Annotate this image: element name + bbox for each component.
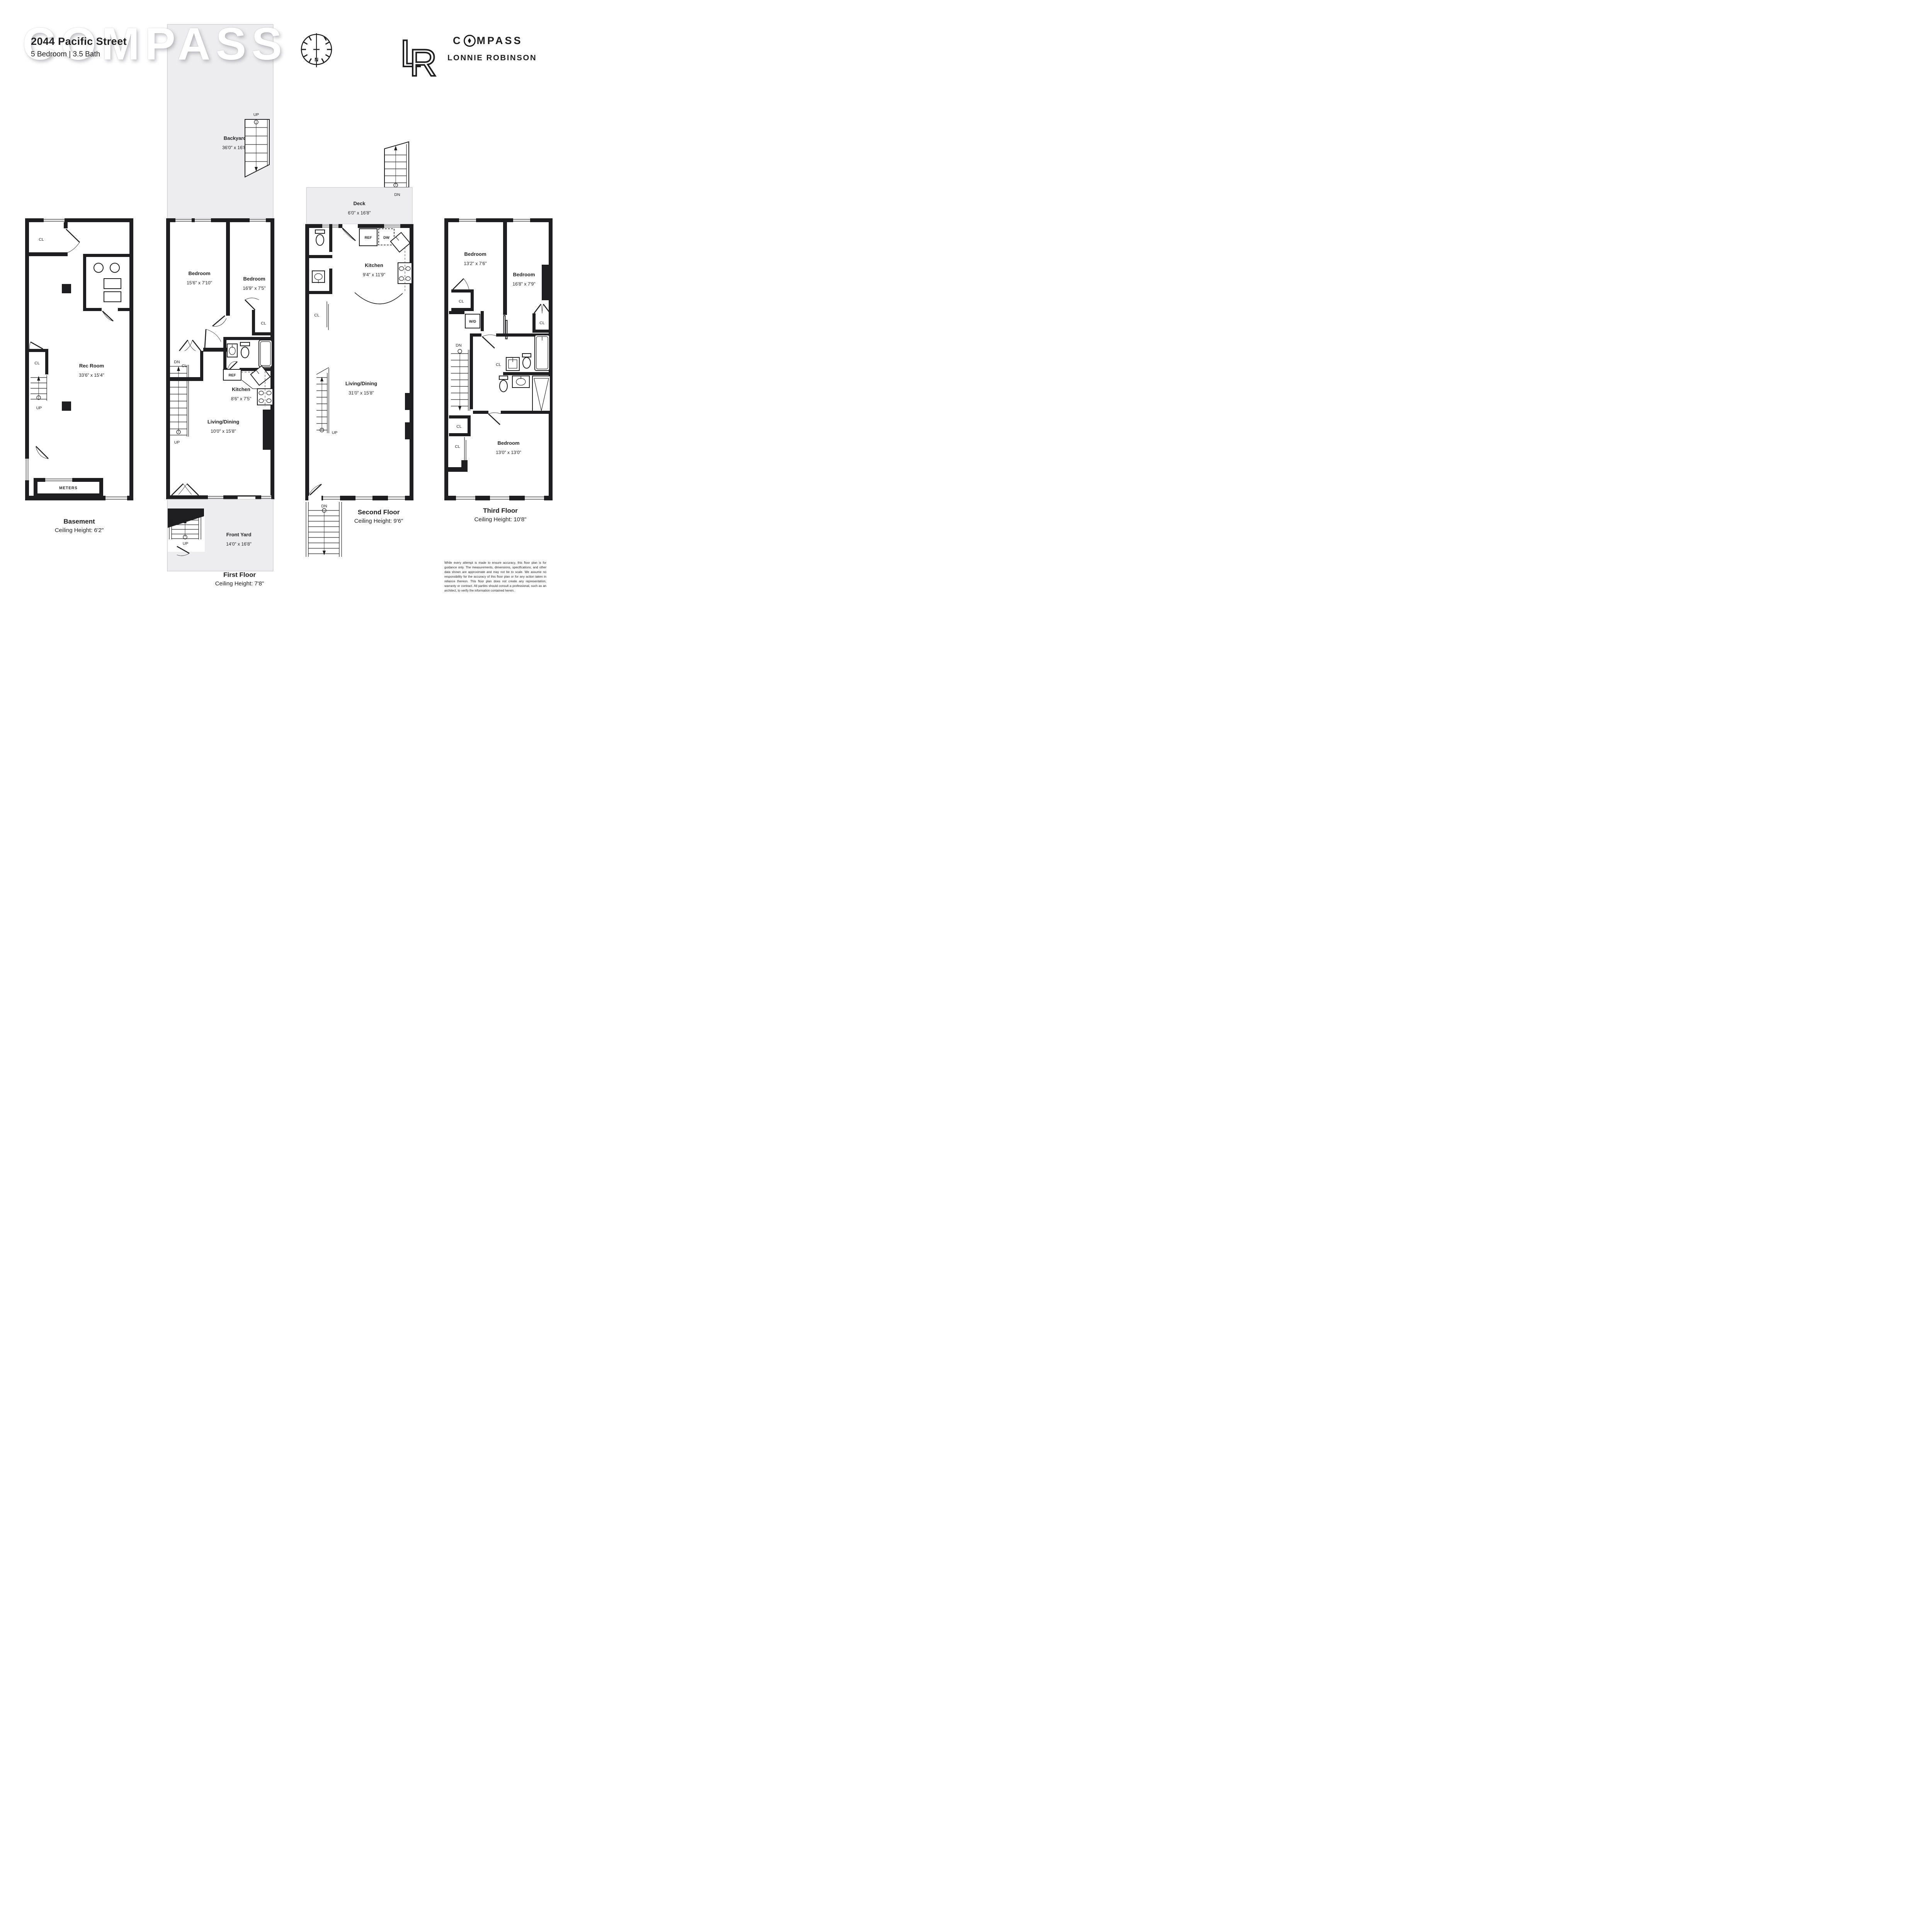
svg-text:8'6" x 7'5": 8'6" x 7'5" <box>231 396 251 401</box>
closet: CL <box>447 437 468 472</box>
bedroom1-label: Bedroom 15'6" x 7'10" <box>187 270 212 286</box>
svg-text:Deck: Deck <box>353 201 366 206</box>
disclaimer-text: While every attempt is made to ensure ac… <box>444 561 546 593</box>
closet: CL <box>449 415 471 436</box>
svg-text:14'0" x 16'8": 14'0" x 16'8" <box>226 541 252 547</box>
svg-text:Backyard: Backyard <box>224 135 247 141</box>
first-floor-walls <box>166 218 274 499</box>
wall-chunk <box>263 410 274 450</box>
staircase-up: UP <box>31 375 47 410</box>
closet-label: CL <box>455 444 460 449</box>
window <box>25 218 127 500</box>
closet: CL <box>29 342 48 374</box>
svg-text:Bedroom: Bedroom <box>464 251 486 257</box>
svg-text:10'0" x 15'8": 10'0" x 15'8" <box>211 429 236 434</box>
svg-text:Living/Dining: Living/Dining <box>207 419 239 425</box>
page-title: 2044 Pacific Street <box>31 36 127 48</box>
up-label: UP <box>253 112 259 117</box>
second-floor-caption: Second Floor Ceiling Height: 9'6" <box>321 509 437 524</box>
north-label: N <box>315 56 318 63</box>
shower-icon <box>532 376 550 412</box>
svg-text:6'0" x 16'8": 6'0" x 16'8" <box>348 210 371 216</box>
svg-text:16'8" x 7'9": 16'8" x 7'9" <box>512 281 535 287</box>
bathroom <box>473 376 553 425</box>
door <box>172 484 199 495</box>
svg-text:15'6" x 7'10": 15'6" x 7'10" <box>187 280 212 286</box>
svg-text:Living/Dining: Living/Dining <box>345 381 377 386</box>
kitchen-label: Kitchen <box>232 386 250 392</box>
staircase: DN UP <box>170 360 189 445</box>
meters-label: METERS <box>59 486 78 490</box>
closet-label: CL <box>39 237 44 242</box>
ref-label: REF <box>229 373 236 378</box>
closet-label: CL <box>456 424 462 429</box>
bed-bath-subtitle: 5 Bedroom | 3.5 Bath <box>31 50 127 59</box>
door <box>308 484 321 500</box>
closet-label: CL <box>459 299 464 304</box>
svg-text:Bedroom: Bedroom <box>243 276 265 282</box>
first-floor-caption: First Floor Ceiling Height: 7'8" <box>185 571 294 587</box>
title-block: 2044 Pacific Street 5 Bedroom | 3.5 Bath <box>31 36 127 59</box>
bathtub-icon <box>535 335 549 371</box>
sink-icon <box>312 271 325 283</box>
dn-label: DN <box>321 504 327 509</box>
svg-text:Front Yard: Front Yard <box>226 532 252 537</box>
powder-room <box>309 224 332 258</box>
wall-chunk <box>405 422 413 439</box>
toilet-icon <box>522 354 531 368</box>
svg-text:13'0" x 13'0": 13'0" x 13'0" <box>496 450 521 455</box>
up-label: UP <box>36 406 42 410</box>
washer-dryer: W/D <box>449 311 484 331</box>
staircase-up: UP <box>316 367 337 435</box>
dn-label: DN <box>174 360 180 364</box>
bathtub-icon <box>259 340 272 367</box>
svg-text:13'2" x 7'6": 13'2" x 7'6" <box>464 261 486 266</box>
second-floor-walls <box>305 224 413 500</box>
up-label: UP <box>174 440 180 445</box>
bedroom1-label: Bedroom 13'2" x 7'6" <box>464 251 486 266</box>
compass-rose-icon: N <box>300 32 333 68</box>
toilet-icon <box>240 342 250 358</box>
closet: CL <box>166 340 203 381</box>
bedroom2-label: Bedroom 16'8" x 7'9" <box>512 272 535 287</box>
door <box>36 446 48 459</box>
second-floor-plan: DN Deck 6'0" x 16'8" <box>305 141 413 570</box>
closet-label: CL <box>182 364 187 368</box>
basement-walls <box>25 218 133 500</box>
dn-label: DN <box>456 343 461 348</box>
bathroom <box>223 337 274 371</box>
column <box>62 284 71 293</box>
monogram-r: R <box>410 41 437 81</box>
wordmark-rest: MPASS <box>477 35 523 47</box>
door <box>205 316 226 348</box>
toilet-icon <box>499 376 508 392</box>
staircase-down: DN <box>451 343 470 411</box>
window <box>322 224 405 500</box>
compass-logo: C MPASS <box>453 35 523 47</box>
meters-room: METERS <box>34 478 103 497</box>
closet: CL <box>451 279 474 311</box>
compass-o-icon <box>464 35 476 47</box>
appliance-icon <box>104 292 121 302</box>
basement-floor-plan: CL CL UP Rec Room 33'6" x 15'4" <box>25 218 133 500</box>
living-dining-label: Living/Dining 10'0" x 15'8" <box>207 419 239 434</box>
closet-label: CL <box>314 313 320 318</box>
laundry-machine-icon <box>110 263 119 272</box>
appliance-icon <box>104 279 121 289</box>
dn-label: DN <box>394 192 400 197</box>
ref-label: REF <box>365 236 372 240</box>
svg-text:33'6" x 15'4": 33'6" x 15'4" <box>79 372 104 378</box>
wall-chunk <box>405 393 413 410</box>
third-floor-plan: Bedroom 13'2" x 7'6" Bedroom 16'8" x 7'9… <box>444 218 553 500</box>
wd-label: W/D <box>469 320 476 324</box>
stair-wall <box>470 333 473 409</box>
closet-label: CL <box>496 362 501 367</box>
sink-room <box>309 269 332 294</box>
door <box>342 224 358 241</box>
living-dining-label: Living/Dining 31'0" x 15'8" <box>345 381 377 396</box>
closet-label: CL <box>34 361 40 366</box>
bedroom-divider-wall <box>226 218 230 316</box>
svg-text:Bedroom: Bedroom <box>188 270 210 276</box>
kitchen-label: Kitchen <box>365 262 383 268</box>
sink-icon <box>512 376 529 388</box>
bedroom3-label: Bedroom 13'0" x 13'0" <box>496 440 521 455</box>
kitchen: REF DW Kitchen 9'4" x 11'9" <box>355 229 412 304</box>
svg-text:Bedroom: Bedroom <box>513 272 535 277</box>
basement-caption: Basement Ceiling Height: 6'2" <box>25 518 133 534</box>
third-floor-caption: Third Floor Ceiling Height: 10'8" <box>442 507 558 523</box>
bathroom: CL <box>473 333 553 371</box>
svg-text:Bedroom: Bedroom <box>497 440 519 446</box>
closet: CL <box>245 298 273 335</box>
svg-text:Rec Room: Rec Room <box>79 363 104 369</box>
closet: CL <box>29 222 80 256</box>
bedroom2-label: Bedroom 16'9" x 7'5" <box>243 276 265 291</box>
up-label: UP <box>332 430 338 435</box>
toilet-icon <box>315 230 325 245</box>
bath-divider-wall <box>503 372 553 375</box>
dw-label: DW <box>383 236 389 240</box>
svg-text:9'4" x 11'9": 9'4" x 11'9" <box>363 272 385 277</box>
closet: CL <box>532 304 551 333</box>
kitchen: REF Kitchen 8'6" x 7'5" <box>223 366 273 406</box>
agent-monogram-logo: L R <box>400 32 440 81</box>
up-label: UP <box>183 541 189 546</box>
first-floor-plan: Backyard 36'0" x 16'8" UP Bedroom 15'6" … <box>166 23 274 572</box>
rec-room-label: Rec Room 33'6" x 15'4" <box>79 363 104 378</box>
closet-label: CL <box>261 321 266 326</box>
utility-room <box>83 254 130 321</box>
sink-icon <box>506 357 519 371</box>
closet: CL <box>314 301 328 330</box>
wall-chunk <box>542 265 553 300</box>
laundry-machine-icon <box>94 263 103 272</box>
svg-text:16'9" x 7'5": 16'9" x 7'5" <box>243 286 265 291</box>
agent-name: LONNIE ROBINSON <box>447 53 537 63</box>
counter-peninsula <box>355 293 403 304</box>
svg-text:36'0" x 16'8": 36'0" x 16'8" <box>222 145 248 150</box>
deck-staircase <box>384 142 409 187</box>
svg-text:31'0" x 15'8": 31'0" x 15'8" <box>349 390 374 396</box>
closet-label: CL <box>539 321 545 325</box>
column <box>62 401 71 411</box>
wordmark-c: C <box>453 35 463 47</box>
bedroom-divider-wall <box>503 218 507 315</box>
